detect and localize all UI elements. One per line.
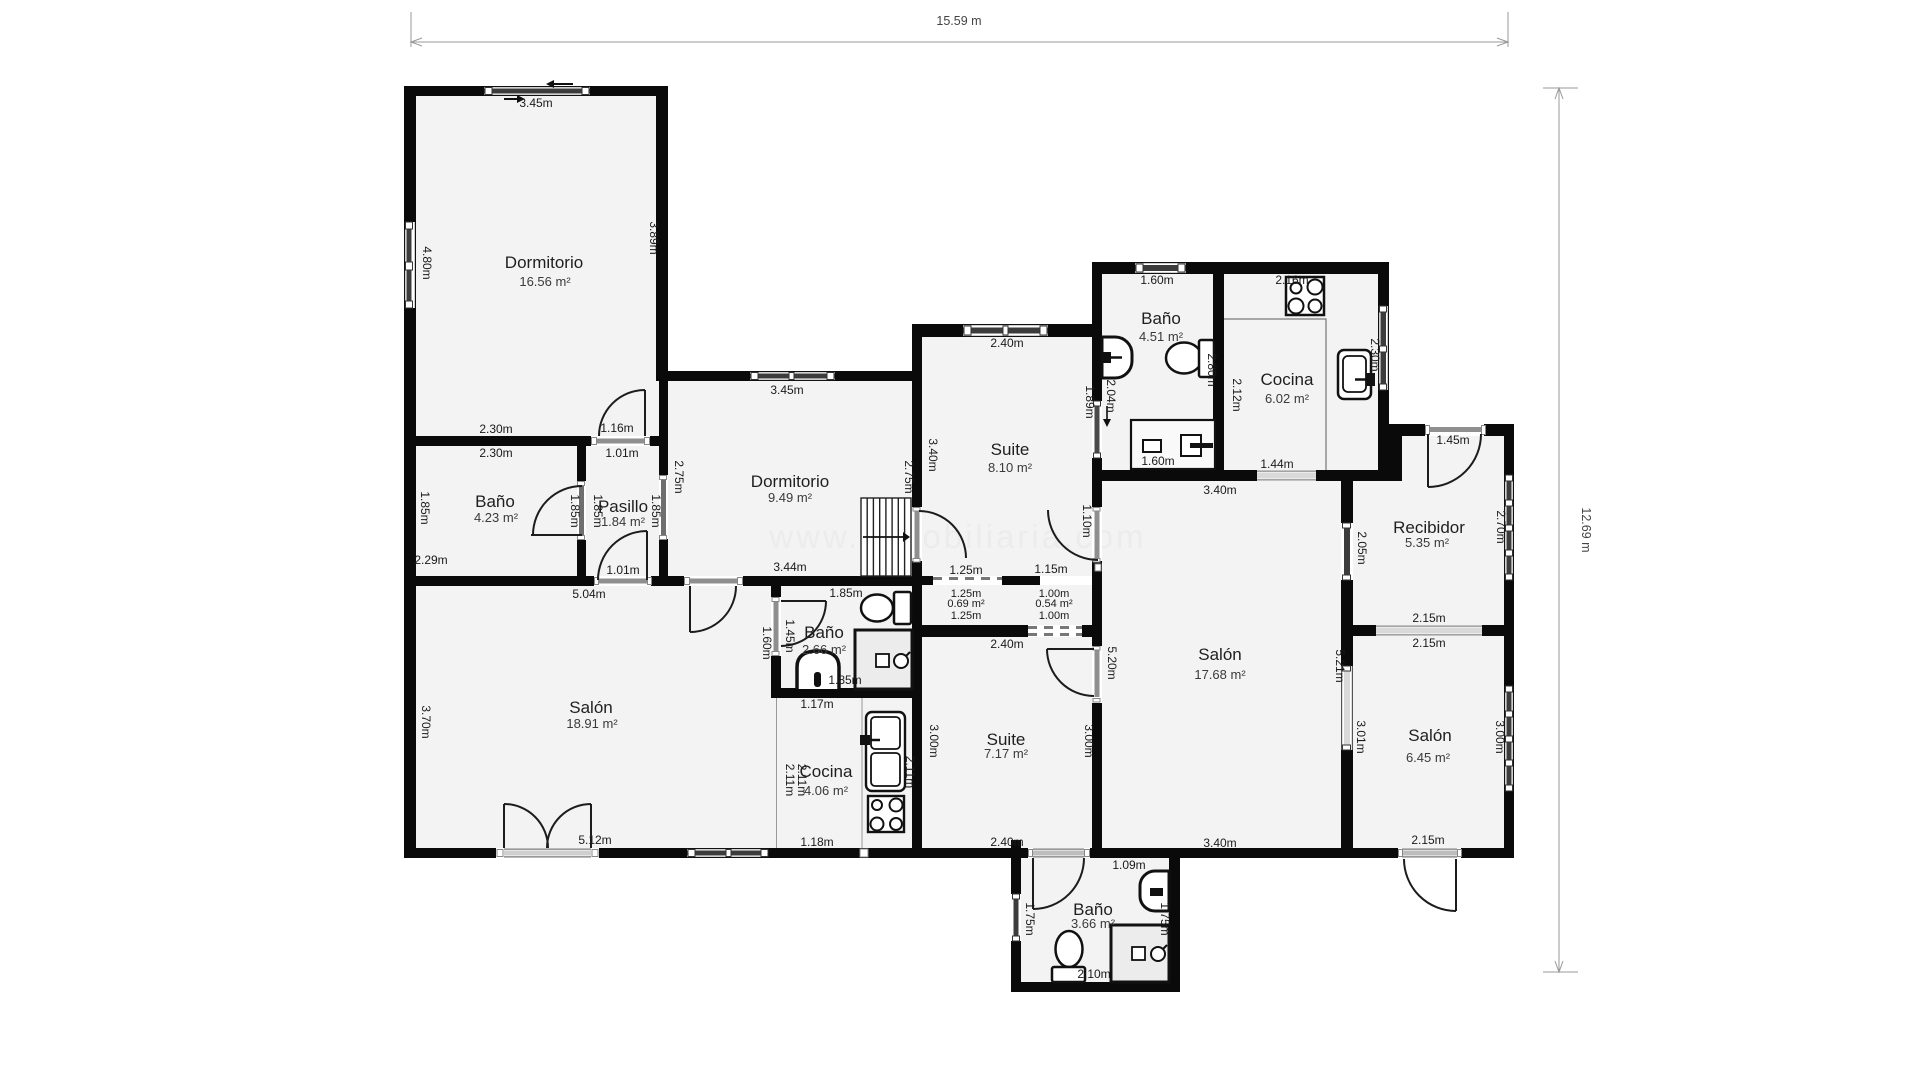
svg-text:2.40m: 2.40m (990, 835, 1023, 849)
svg-text:3.40m: 3.40m (926, 438, 940, 471)
svg-text:2.16m: 2.16m (1275, 273, 1308, 287)
svg-text:Suite: Suite (991, 440, 1030, 459)
svg-text:Baño: Baño (1141, 309, 1181, 328)
svg-text:1.85m: 1.85m (591, 494, 605, 527)
svg-text:2.30m: 2.30m (1368, 338, 1382, 371)
svg-text:0.54 m²: 0.54 m² (1035, 598, 1073, 610)
svg-text:2.29m: 2.29m (414, 553, 447, 567)
svg-text:Baño: Baño (804, 623, 844, 642)
svg-text:1.85m: 1.85m (829, 586, 862, 600)
svg-text:6.02 m²: 6.02 m² (1265, 391, 1310, 406)
svg-text:1.18m: 1.18m (800, 835, 833, 849)
svg-text:1.09m: 1.09m (1112, 858, 1145, 872)
svg-text:3.01m: 3.01m (1354, 720, 1368, 753)
svg-text:1.25m: 1.25m (951, 610, 982, 622)
svg-text:3.00m: 3.00m (1082, 724, 1096, 757)
svg-text:5.04m: 5.04m (572, 587, 605, 601)
svg-text:8.10 m²: 8.10 m² (988, 460, 1033, 475)
svg-text:Cocina: Cocina (1261, 370, 1314, 389)
svg-text:1.44m: 1.44m (1260, 457, 1293, 471)
svg-text:4.80m: 4.80m (420, 246, 434, 279)
svg-text:2.15m: 2.15m (1412, 636, 1445, 650)
svg-text:1.60m: 1.60m (1141, 454, 1174, 468)
svg-text:3.70m: 3.70m (419, 705, 433, 738)
svg-text:1.75m: 1.75m (1023, 902, 1037, 935)
svg-text:Baño: Baño (475, 492, 515, 511)
svg-text:1.85m: 1.85m (568, 494, 582, 527)
svg-text:2.04m: 2.04m (1104, 379, 1118, 412)
svg-text:1.45m: 1.45m (1436, 433, 1469, 447)
svg-text:6.45 m²: 6.45 m² (1406, 750, 1451, 765)
svg-text:7.17 m²: 7.17 m² (984, 746, 1029, 761)
svg-text:1.89m: 1.89m (1083, 385, 1097, 418)
svg-text:1.85m: 1.85m (828, 673, 861, 687)
svg-text:1.45m: 1.45m (783, 619, 797, 652)
svg-text:3.89m: 3.89m (647, 221, 661, 254)
svg-text:5.35 m²: 5.35 m² (1405, 535, 1450, 550)
svg-text:2.11m: 2.11m (783, 764, 797, 796)
svg-text:2.15m: 2.15m (1411, 833, 1444, 847)
svg-text:1.84 m²: 1.84 m² (601, 514, 646, 529)
svg-text:2.75m: 2.75m (902, 460, 916, 493)
svg-text:5.12m: 5.12m (578, 833, 611, 847)
svg-text:17.68 m²: 17.68 m² (1194, 667, 1246, 682)
svg-text:4.51 m²: 4.51 m² (1139, 329, 1184, 344)
svg-text:1.10m: 1.10m (1080, 504, 1094, 537)
svg-text:9.49 m²: 9.49 m² (768, 490, 813, 505)
svg-text:0.69 m²: 0.69 m² (947, 598, 985, 610)
svg-text:16.56 m²: 16.56 m² (519, 274, 571, 289)
svg-text:1.75m: 1.75m (1158, 902, 1172, 935)
svg-text:2.12m: 2.12m (1230, 378, 1244, 411)
svg-text:2.05m: 2.05m (1355, 531, 1369, 564)
svg-text:1.00m: 1.00m (1039, 610, 1070, 622)
svg-text:1.85m: 1.85m (418, 491, 432, 524)
svg-text:Salón: Salón (1198, 645, 1241, 664)
svg-text:3.66 m²: 3.66 m² (1071, 916, 1116, 931)
svg-text:4.23 m²: 4.23 m² (474, 510, 519, 525)
svg-text:2.70m: 2.70m (1494, 510, 1508, 543)
svg-text:3.40m: 3.40m (1203, 483, 1236, 497)
svg-text:2.30m: 2.30m (479, 422, 512, 436)
svg-text:4.06 m²: 4.06 m² (804, 783, 849, 798)
svg-text:Salón: Salón (1408, 726, 1451, 745)
svg-text:12.69 m: 12.69 m (1579, 507, 1593, 552)
svg-text:3.00m: 3.00m (927, 724, 941, 757)
svg-text:2.11m: 2.11m (903, 756, 917, 788)
svg-text:2.11m: 2.11m (795, 764, 809, 796)
svg-text:5.20m: 5.20m (1105, 646, 1119, 679)
svg-text:1.85m: 1.85m (649, 494, 663, 527)
svg-text:3.00m: 3.00m (1493, 720, 1507, 753)
svg-text:1.25m: 1.25m (949, 563, 982, 577)
svg-text:2.66 m²: 2.66 m² (802, 642, 847, 657)
svg-text:1.01m: 1.01m (606, 563, 639, 577)
svg-text:3.40m: 3.40m (1203, 836, 1236, 850)
svg-text:1.60m: 1.60m (1140, 273, 1173, 287)
svg-text:Dormitorio: Dormitorio (505, 253, 583, 272)
svg-text:2.30m: 2.30m (479, 446, 512, 460)
svg-text:3.44m: 3.44m (773, 560, 806, 574)
svg-text:18.91 m²: 18.91 m² (566, 716, 618, 731)
svg-text:2.15m: 2.15m (1412, 611, 1445, 625)
svg-text:3.45m: 3.45m (770, 383, 803, 397)
svg-text:2.80m: 2.80m (1205, 353, 1219, 386)
svg-text:1.15m: 1.15m (1034, 562, 1067, 576)
svg-text:2.40m: 2.40m (990, 637, 1023, 651)
svg-text:1.01m: 1.01m (605, 446, 638, 460)
svg-text:1.16m: 1.16m (600, 421, 633, 435)
svg-text:5.21m: 5.21m (1333, 649, 1347, 682)
svg-text:Salón: Salón (569, 698, 612, 717)
svg-text:2.10m: 2.10m (1077, 967, 1110, 981)
svg-text:1.17m: 1.17m (800, 697, 833, 711)
svg-text:2.75m: 2.75m (672, 460, 686, 493)
svg-text:15.59 m: 15.59 m (936, 14, 981, 28)
svg-text:Dormitorio: Dormitorio (751, 472, 829, 491)
svg-text:3.45m: 3.45m (519, 96, 552, 110)
svg-text:2.40m: 2.40m (990, 336, 1023, 350)
svg-text:1.60m: 1.60m (760, 626, 774, 659)
